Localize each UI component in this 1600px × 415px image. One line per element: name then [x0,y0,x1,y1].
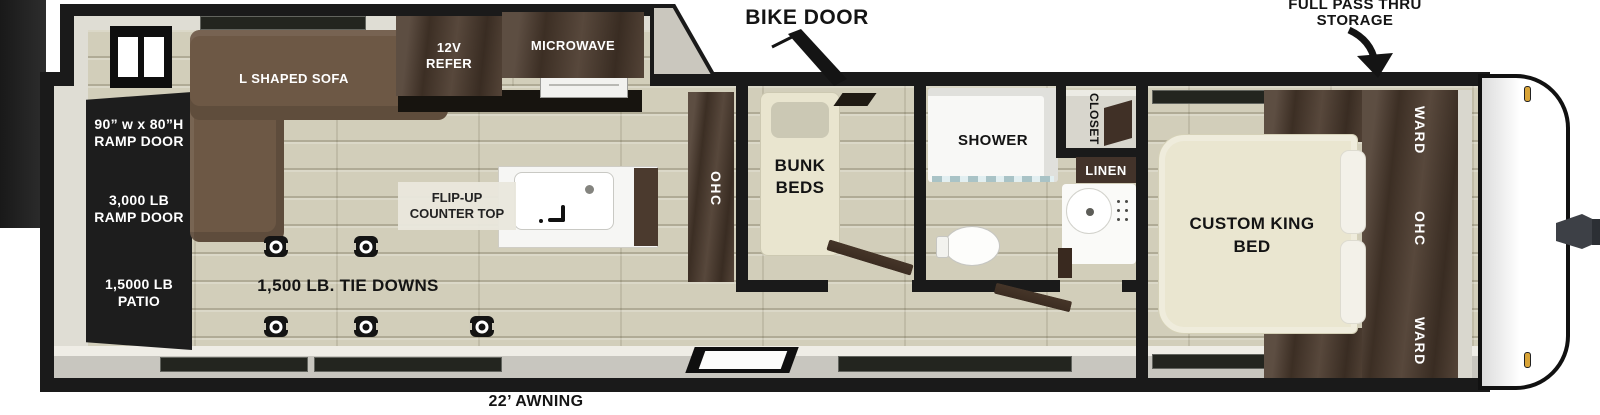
tie-down-slot [376,243,379,250]
ramp-size-line1: 90” w x 80”H [86,116,192,133]
vanity-drain [1086,208,1094,216]
ramp-door-weight-label: 3,000 LB RAMP DOOR [86,192,192,226]
refer-line1: 12V [437,40,461,56]
ramp-size-line2: RAMP DOOR [86,133,192,150]
tie-down-slot [492,323,495,330]
awning-label: 22’ AWNING [468,393,604,411]
tie-down-icon [354,316,378,337]
wardrobe-label-bottom: WARD [1398,300,1428,382]
bunkroom-right-wall [914,86,926,292]
patio-label: 1,5000 LB PATIO [86,276,192,310]
faucet-handle [539,219,543,223]
hall-wall-segment [1122,280,1148,292]
doorside-window [160,357,308,372]
bedroom-bottom-window [1152,354,1280,369]
tie-down-slot [376,323,379,330]
shower-glass [932,176,1054,182]
tie-down-slot [263,243,266,250]
floorplan-canvas: 90” w x 80”H RAMP DOOR 3,000 LB RAMP DOO… [0,0,1600,415]
king-bed-line2: BED [1162,235,1342,258]
refrigerator: 12V REFER [396,16,502,96]
marker-light [1524,86,1531,102]
king-bed-line1: CUSTOM KING [1162,212,1342,235]
bedroom-left-wall [1136,86,1148,378]
bathroom-bottom-wall [912,280,1060,292]
tie-down-ring [360,320,373,333]
marker-light [1524,352,1531,368]
microwave-cabinet: MICROWAVE [502,12,644,78]
garage-side-window [110,26,172,88]
ramp-weight-line1: 3,000 LB [86,192,192,209]
counter-line2: COUNTER TOP [410,206,504,222]
tie-down-icon [264,316,288,337]
tie-down-ring [360,240,373,253]
closet-shelf-panel [1104,100,1132,146]
refer-line2: REFER [426,56,472,72]
tie-down-slot [353,243,356,250]
tie-down-icon [354,236,378,257]
faucet-spout [548,218,565,222]
cooktop-line [549,84,619,86]
tie-down-icon [470,316,494,337]
sink-icon [514,172,614,230]
patio-line2: PATIO [86,293,192,310]
sofa-label: L SHAPED SOFA [214,72,374,87]
ramp-weight-line2: RAMP DOOR [86,209,192,226]
doorside-window [838,356,1072,372]
ramp-door: 90” w x 80”H RAMP DOOR 3,000 LB RAMP DOO… [86,92,192,350]
hitch-jack-mount [1592,219,1600,245]
microwave-label: MICROWAVE [531,38,615,53]
king-bed-label: CUSTOM KING BED [1162,212,1342,258]
vanity-base-cabinet [1058,248,1072,278]
wardrobe-bottom-block [1264,328,1366,378]
toilet-icon [944,226,1000,266]
overhead-cabinet-label: OHC [700,154,724,224]
garage-top-window [200,16,366,30]
tie-down-slot [353,323,356,330]
bedroom-top-window [1152,90,1280,104]
window-pane [144,37,164,77]
counter-line1: FLIP-UP [432,190,483,206]
wardrobe-label-top: WARD [1398,92,1428,168]
tie-down-slot [286,323,289,330]
tie-down-slot [286,243,289,250]
bedroom-ohc-label: OHC [1398,202,1428,256]
pillow [1340,150,1366,234]
shower-label: SHOWER [928,132,1058,149]
storage-arrow-icon [1349,30,1375,62]
tie-down-ring [270,240,283,253]
tie-down-icon [264,236,288,257]
front-cap [1478,74,1570,390]
entry-door [685,347,798,373]
bunkroom-left-wall [736,86,748,292]
front-inner-wall [1458,90,1472,378]
toilet-tank [936,236,949,258]
pass-thru-storage-label: FULL PASS THRU STORAGE [1262,0,1448,29]
tie-down-slot [263,323,266,330]
rear-wall-band [54,86,88,348]
tie-down-ring [476,320,489,333]
bike-door-pointer-tail [772,36,794,47]
bunk-pillow [771,102,829,138]
sink-drain [585,185,594,194]
bunkroom-bottom-wall [736,280,828,292]
bunk-line1: BUNK [752,155,848,177]
window-pane [118,37,138,77]
island-wood-edge [634,168,658,246]
vanity-faucet-dots [1117,200,1120,203]
tie-downs-label: 1,500 LB. TIE DOWNS [248,276,448,296]
vanity-sink-icon [1066,188,1112,234]
doorside-window [314,357,502,372]
patio-line1: 1,5000 LB [86,276,192,293]
tie-down-slot [469,323,472,330]
linen-label: LINEN [1085,163,1127,178]
entry-door-panel [699,351,788,369]
ramp-door-size-label: 90” w x 80”H RAMP DOOR [86,116,192,150]
tie-down-ring [270,320,283,333]
pillow [1340,240,1366,324]
linen-cabinet: LINEN [1076,157,1136,183]
flip-up-counter-label: FLIP-UP COUNTER TOP [398,182,516,230]
bunk-beds-label: BUNK BEDS [752,155,848,199]
storage-line2: STORAGE [1262,13,1448,29]
bunk-line2: BEDS [752,177,848,199]
closet-label: CLOSET [1078,90,1100,148]
bike-door-label: BIKE DOOR [740,6,874,30]
